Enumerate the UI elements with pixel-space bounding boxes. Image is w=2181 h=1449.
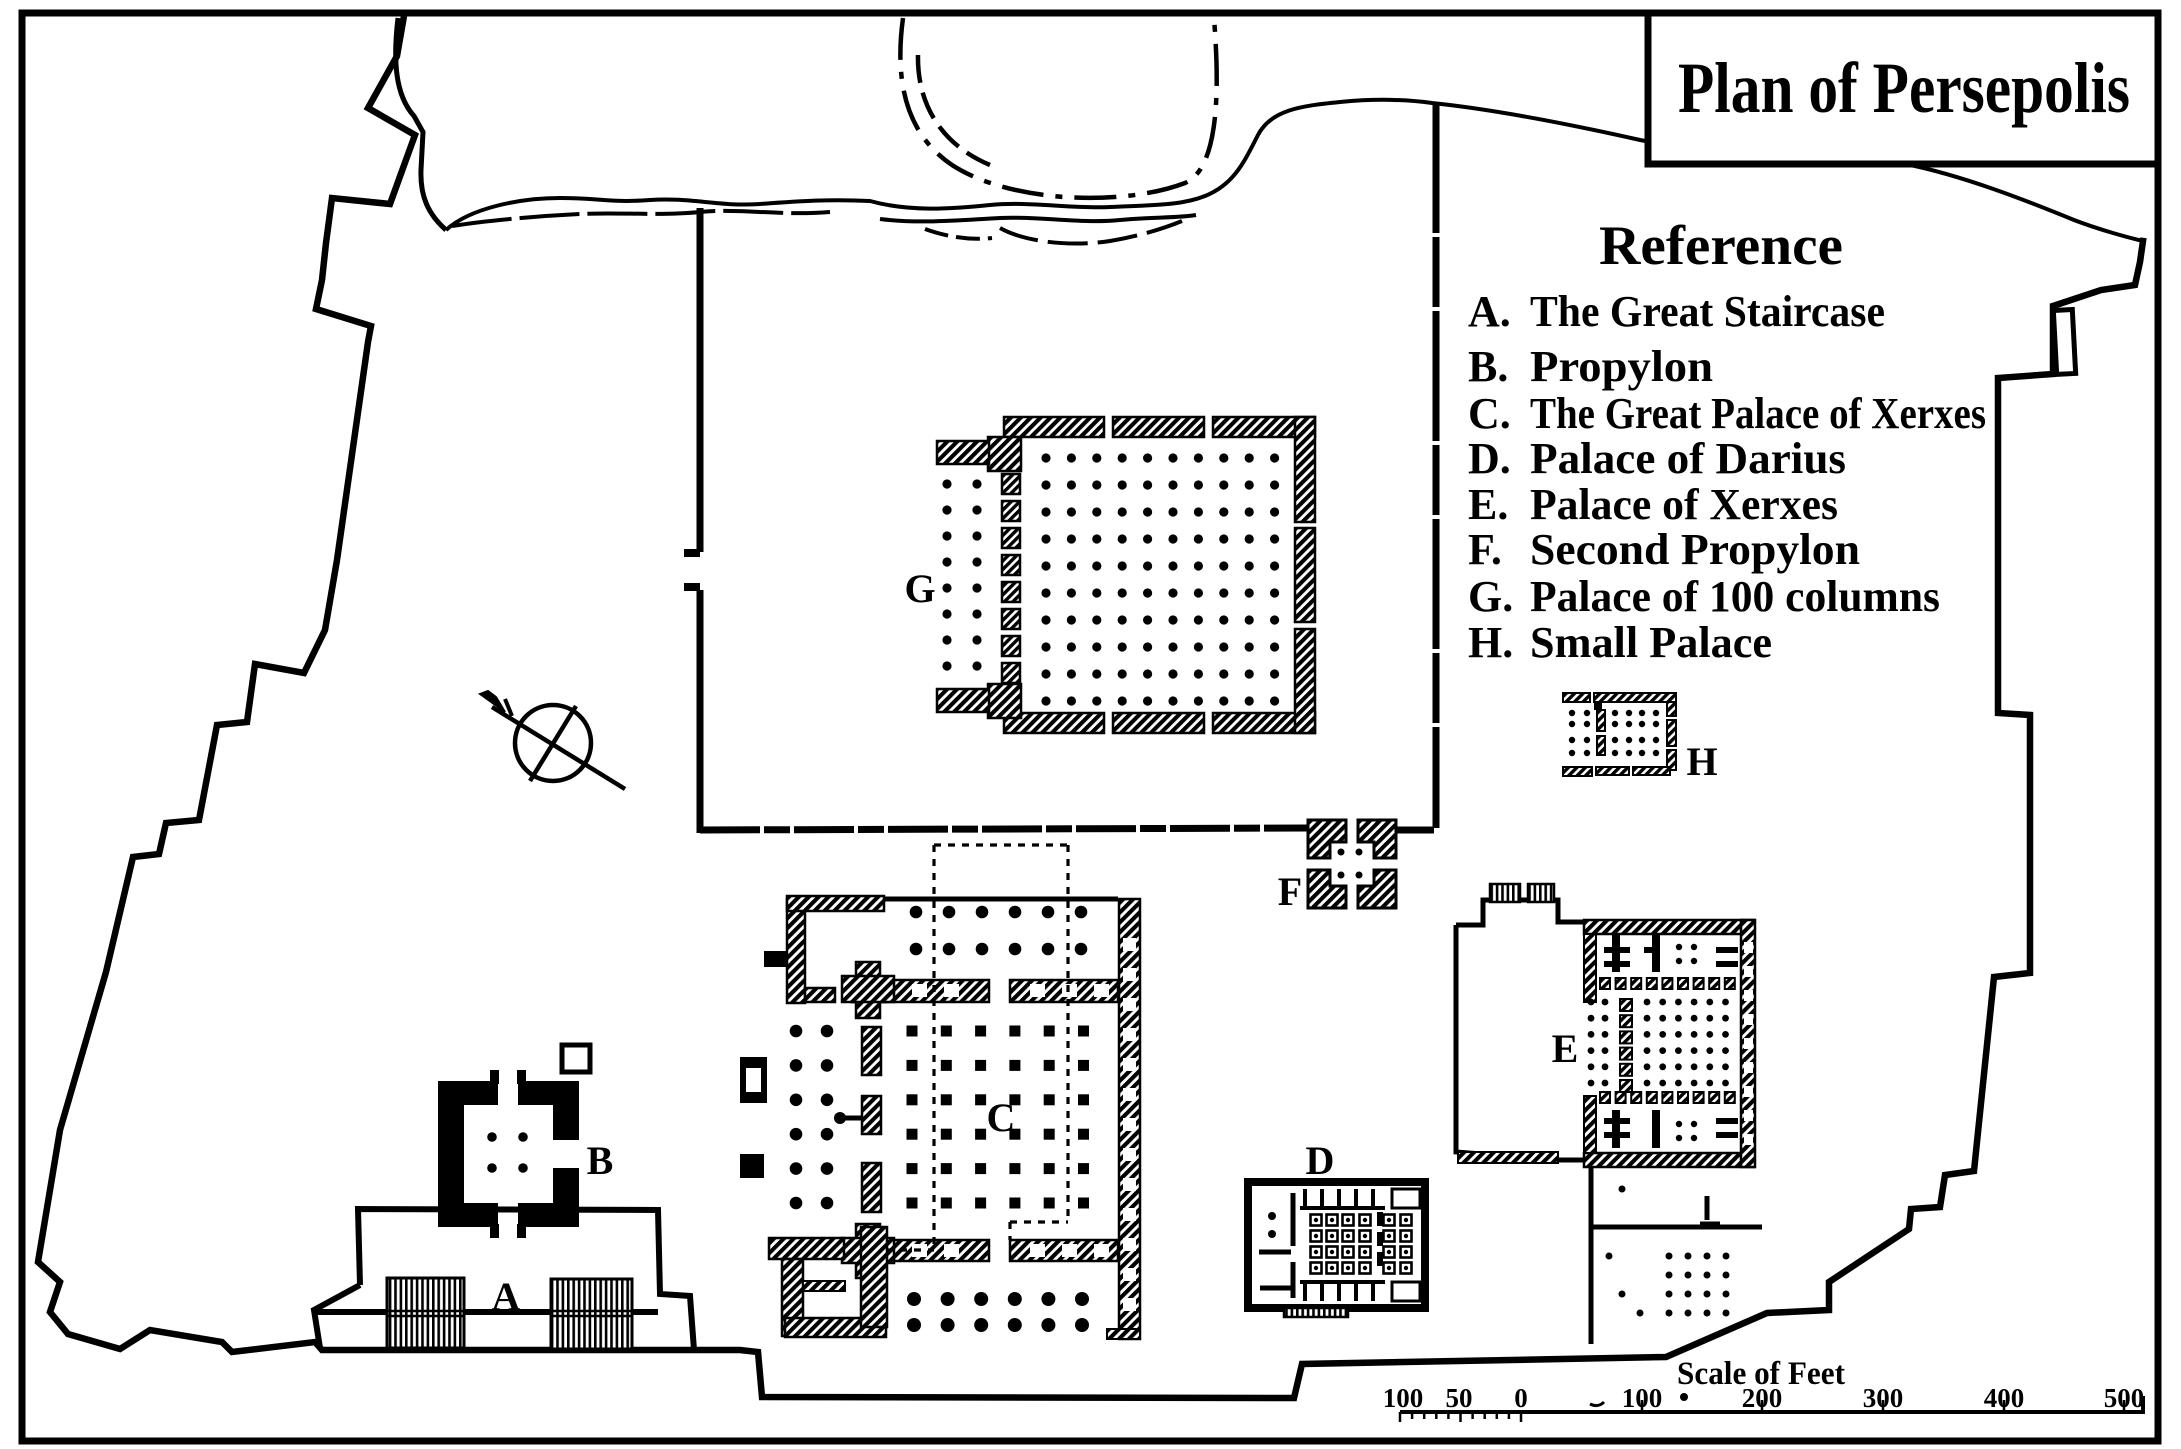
svg-text:F.: F. — [1468, 525, 1502, 574]
svg-text:F: F — [1278, 869, 1302, 914]
svg-text:400: 400 — [1984, 1383, 2025, 1413]
svg-text:0: 0 — [1514, 1383, 1528, 1413]
svg-text:B: B — [587, 1138, 614, 1183]
svg-text:Palace of 100 columns: Palace of 100 columns — [1530, 572, 1940, 621]
svg-text:Palace of Darius: Palace of Darius — [1530, 434, 1846, 483]
svg-text:500: 500 — [2104, 1383, 2145, 1413]
svg-text:D: D — [1306, 1138, 1335, 1183]
svg-text:Plan of Persepolis: Plan of Persepolis — [1678, 48, 2130, 128]
svg-text:E.: E. — [1468, 480, 1508, 529]
svg-text:100: 100 — [1622, 1383, 1663, 1413]
svg-text:The Great Palace of Xerxes: The Great Palace of Xerxes — [1530, 389, 1986, 438]
svg-text:C.: C. — [1468, 389, 1511, 438]
svg-text:50: 50 — [1446, 1383, 1473, 1413]
svg-text:Small Palace: Small Palace — [1530, 618, 1772, 667]
svg-text:A.: A. — [1468, 287, 1511, 336]
svg-text:A: A — [492, 1274, 521, 1319]
svg-text:Second Propylon: Second Propylon — [1530, 525, 1860, 574]
svg-text:100: 100 — [1383, 1383, 1424, 1413]
svg-text:C: C — [987, 1095, 1016, 1140]
svg-text:B.: B. — [1468, 342, 1508, 391]
svg-text:300: 300 — [1863, 1383, 1904, 1413]
svg-text:E: E — [1552, 1026, 1579, 1071]
svg-text:H.: H. — [1468, 618, 1513, 667]
svg-text:Palace of Xerxes: Palace of Xerxes — [1530, 480, 1838, 529]
svg-text:The Great Staircase: The Great Staircase — [1530, 287, 1885, 336]
svg-text:D.: D. — [1468, 434, 1511, 483]
svg-text:Propylon: Propylon — [1530, 342, 1713, 391]
svg-text:Reference: Reference — [1599, 215, 1843, 277]
svg-text:G.: G. — [1468, 572, 1513, 621]
svg-text:H: H — [1686, 739, 1717, 784]
svg-text:200: 200 — [1742, 1383, 1783, 1413]
svg-text:G: G — [904, 566, 935, 611]
